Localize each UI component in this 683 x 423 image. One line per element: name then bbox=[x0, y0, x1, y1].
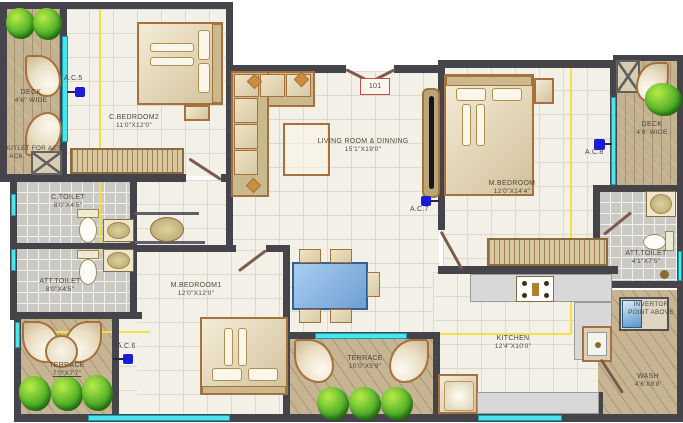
unit-number-tag: 101 bbox=[360, 78, 390, 95]
ac5-label: A.C.5 bbox=[64, 75, 83, 82]
sleeper-figure bbox=[150, 43, 194, 52]
room-label-att-toilet-right: ATT.TOILET 4'1"X7'5" bbox=[604, 249, 683, 266]
bed-headboard bbox=[212, 24, 222, 103]
toilet-bowl bbox=[79, 217, 97, 243]
dining-table bbox=[292, 262, 368, 310]
floor-drain bbox=[660, 270, 669, 279]
ac6-label: A.C.6 bbox=[117, 343, 136, 350]
plant bbox=[381, 387, 413, 420]
bed-headboard bbox=[202, 386, 286, 394]
window bbox=[11, 194, 16, 216]
wall-segment bbox=[130, 245, 236, 252]
fridge-top bbox=[444, 381, 474, 411]
wash-basin bbox=[103, 249, 134, 272]
sleeper-figure bbox=[150, 57, 194, 66]
note-outlet: OUTLET FOR AC5 & AC6 bbox=[3, 145, 61, 161]
ac7-marker bbox=[421, 196, 431, 206]
tree bbox=[645, 83, 682, 116]
window bbox=[611, 97, 616, 185]
room-label-living: LIVING ROOM & DINNING 15'1"X19'0" bbox=[303, 137, 423, 154]
room-label-kitchen: KITCHEN 12'4"X10'0" bbox=[463, 334, 563, 351]
wardrobe-c-bedroom2 bbox=[70, 148, 184, 174]
wall-segment bbox=[112, 318, 119, 422]
pillow bbox=[456, 88, 486, 101]
dining-chair bbox=[330, 309, 352, 323]
ac5-marker bbox=[75, 87, 85, 97]
sleeper-figure bbox=[462, 104, 471, 146]
room-label-att-toilet-left: ATT.TOILET 8'0"X4'5" bbox=[20, 277, 100, 294]
room-label-c-bedroom2: C.BEDROOM2 11'0"X12'0" bbox=[84, 113, 184, 130]
room-label-deck-left: DECK 4'6" WIDE bbox=[1, 88, 61, 105]
note-invertor: INVERTOR POINT ABOVE bbox=[628, 301, 674, 317]
tree bbox=[33, 8, 62, 40]
pillow bbox=[198, 30, 210, 60]
ac6-marker bbox=[123, 354, 133, 364]
pillow bbox=[248, 368, 278, 381]
wash-basin bbox=[646, 191, 676, 217]
sofa-cushion bbox=[234, 124, 258, 149]
wall-segment bbox=[593, 185, 600, 288]
room-label-terrace-bottom: TERRACE 10'0"X5'9" bbox=[325, 354, 405, 371]
window bbox=[88, 415, 230, 421]
sleeper-figure bbox=[224, 328, 233, 366]
wall-segment bbox=[135, 212, 199, 215]
window bbox=[478, 415, 562, 421]
wall-segment bbox=[438, 60, 620, 68]
room-label-c-toilet: C.TOILET 8'0"X4'5" bbox=[28, 193, 108, 210]
plant bbox=[51, 376, 83, 411]
pillow bbox=[198, 63, 210, 93]
kitchen-sink bbox=[582, 326, 612, 362]
dining-chair bbox=[299, 249, 321, 263]
sofa-cushion bbox=[260, 74, 285, 97]
wash-basin bbox=[103, 219, 134, 242]
wall-segment bbox=[266, 245, 290, 252]
tree bbox=[6, 8, 35, 39]
bedside-bench bbox=[534, 78, 554, 104]
tv-screen bbox=[429, 96, 434, 189]
plant bbox=[82, 375, 113, 411]
window bbox=[315, 333, 407, 339]
plant bbox=[317, 387, 349, 420]
plant bbox=[19, 376, 51, 411]
dining-chair bbox=[330, 249, 352, 263]
wall-segment bbox=[10, 312, 142, 319]
wall-segment bbox=[0, 174, 186, 182]
plant bbox=[349, 387, 381, 420]
room-label-m-bedroom1: M.BEDROOM1 12'0"X12'0" bbox=[146, 281, 246, 298]
ac-stem bbox=[430, 200, 439, 202]
sofa-cushion bbox=[234, 150, 258, 175]
bedside-table bbox=[184, 105, 210, 121]
toilet-tank bbox=[665, 231, 674, 251]
wall-segment bbox=[0, 2, 233, 9]
window bbox=[15, 322, 20, 348]
hob-stove bbox=[516, 276, 554, 302]
wall-segment bbox=[438, 266, 618, 274]
pillow bbox=[212, 368, 242, 381]
wall-segment bbox=[677, 288, 683, 422]
dining-chair bbox=[367, 272, 380, 297]
room-label-m-bedroom: M.BEDROOM 12'0"X14'4" bbox=[462, 179, 562, 196]
dining-chair bbox=[299, 309, 321, 323]
bed-headboard bbox=[446, 76, 532, 86]
pillow bbox=[492, 88, 522, 101]
kitchen-counter-bottom bbox=[477, 392, 599, 414]
wardrobe-m-bedroom bbox=[487, 238, 608, 266]
toilet-tank bbox=[77, 250, 99, 259]
ac-stem bbox=[604, 143, 612, 145]
floor-plan: A.C.5 A.C.6 A.C.7 A.C.8 101 C.BEDROOM2 1… bbox=[0, 0, 683, 423]
room-label-wash: WASH 4'6'X8'8' bbox=[608, 372, 683, 389]
sofa-cushion bbox=[234, 98, 258, 123]
sleeper-figure bbox=[476, 104, 485, 146]
passage-basin bbox=[150, 217, 184, 242]
window bbox=[62, 36, 68, 142]
sleeper-figure bbox=[238, 328, 247, 366]
room-label-terrace-left: TERRACE 7'0"X7'7" bbox=[27, 361, 107, 378]
toilet-bowl bbox=[643, 234, 666, 250]
ac7-label: A.C.7 bbox=[410, 206, 429, 213]
window bbox=[11, 249, 16, 271]
service-line bbox=[99, 9, 101, 252]
ac8-label: A.C.8 bbox=[585, 149, 604, 156]
room-label-deck-right: DECK 4'6' WIDE bbox=[622, 120, 682, 137]
